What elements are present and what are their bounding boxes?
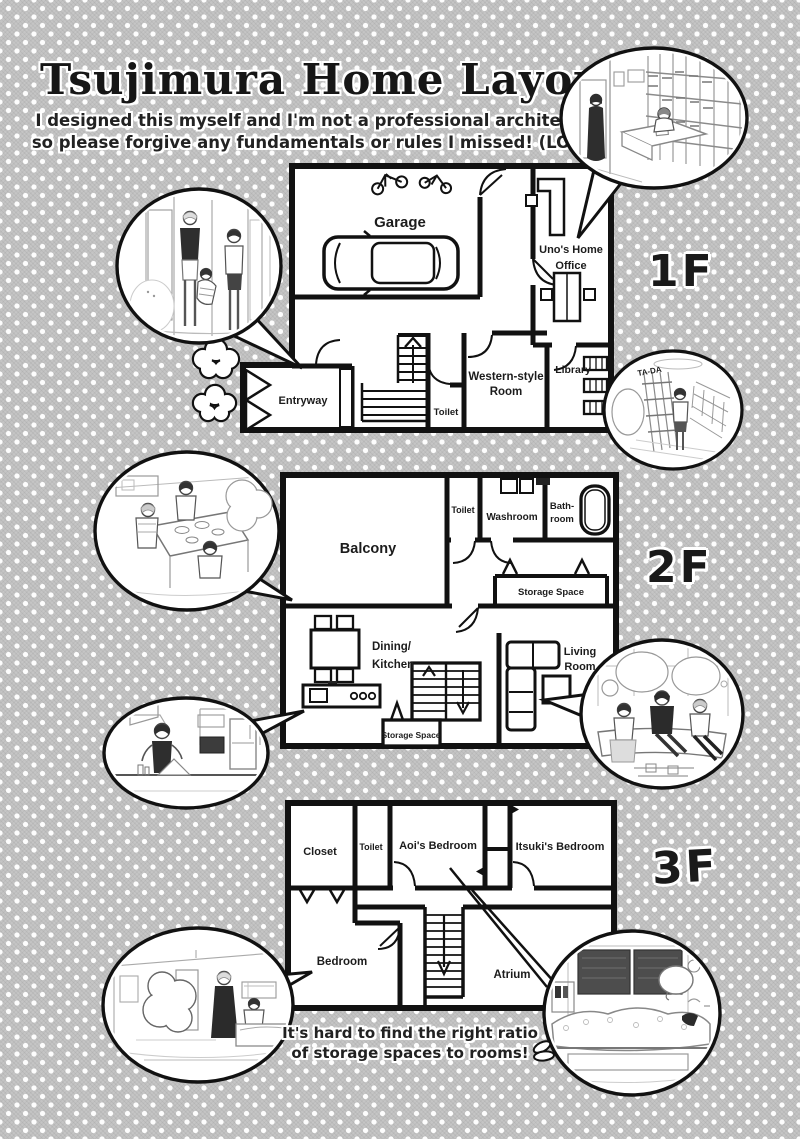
caption-hand-doodle-icon: [528, 1038, 560, 1066]
inset-dining: [90, 448, 302, 628]
room-label-western-2: Room: [490, 386, 523, 398]
shoe-cabinet-icon: [340, 369, 352, 427]
room-label-bathroom-2: room: [550, 514, 574, 525]
room-label-garage: Garage: [374, 214, 426, 231]
room-label-toilet-1f: Toilet: [434, 407, 459, 418]
subtitle-line1: I designed this myself and I'm not a pro…: [20, 110, 600, 132]
room-label-storage-upper: Storage Space: [518, 587, 584, 598]
inset-entryway: [112, 186, 312, 378]
bottom-caption: It's hard to find the right ratio of sto…: [265, 1024, 555, 1063]
room-label-toilet-3f: Toilet: [359, 842, 382, 852]
page-title: Tsujimura Home Layout: [40, 55, 580, 104]
inset-library: TA-DA: [600, 348, 750, 476]
floor-label-2f: 2F: [646, 542, 713, 593]
car-icon: [324, 231, 458, 295]
room-label-closet: Closet: [303, 846, 337, 858]
kitchen-counter-icon: [303, 681, 380, 707]
room-label-toilet-2f: Toilet: [451, 505, 474, 515]
room-label-dining-1: Dining/: [372, 641, 412, 653]
inset-office: [552, 42, 764, 252]
inset-bedroom-3f: [96, 920, 321, 1095]
caption-line1: It's hard to find the right ratio: [265, 1024, 555, 1044]
page-subtitle: I designed this myself and I'm not a pro…: [20, 110, 600, 155]
bathtub-icon: [581, 486, 609, 534]
room-label-office-2: Office: [555, 260, 586, 272]
room-label-atrium: Atrium: [493, 969, 530, 981]
inset-aoi-bedroom: [538, 926, 728, 1104]
room-label-western-1: Western-style: [468, 371, 543, 383]
caption-line2: of storage spaces to rooms!: [265, 1044, 555, 1064]
room-label-dining-2: Kitchen: [372, 659, 414, 671]
floor-label-3f: 3F: [651, 840, 720, 894]
floor-label-1f: 1F: [648, 246, 715, 297]
room-label-storage-lower: Storage Space: [381, 730, 440, 740]
room-label-balcony: Balcony: [340, 541, 396, 557]
inset-living: [538, 636, 788, 806]
room-label-aoi: Aoi's Bedroom: [399, 840, 477, 852]
room-label-washroom: Washroom: [486, 512, 537, 523]
room-label-itsuki: Itsuki's Bedroom: [516, 841, 605, 853]
room-label-entryway: Entryway: [279, 395, 329, 407]
manga-page: Tsujimura Home Layout I designed this my…: [0, 0, 800, 1139]
room-label-bathroom-1: Bath-: [550, 501, 574, 512]
inset-kitchen: [100, 695, 310, 815]
room-label-bedroom: Bedroom: [317, 956, 367, 968]
subtitle-line2: so please forgive any fundamentals or ru…: [20, 132, 600, 154]
room-label-library: Library: [555, 364, 591, 376]
